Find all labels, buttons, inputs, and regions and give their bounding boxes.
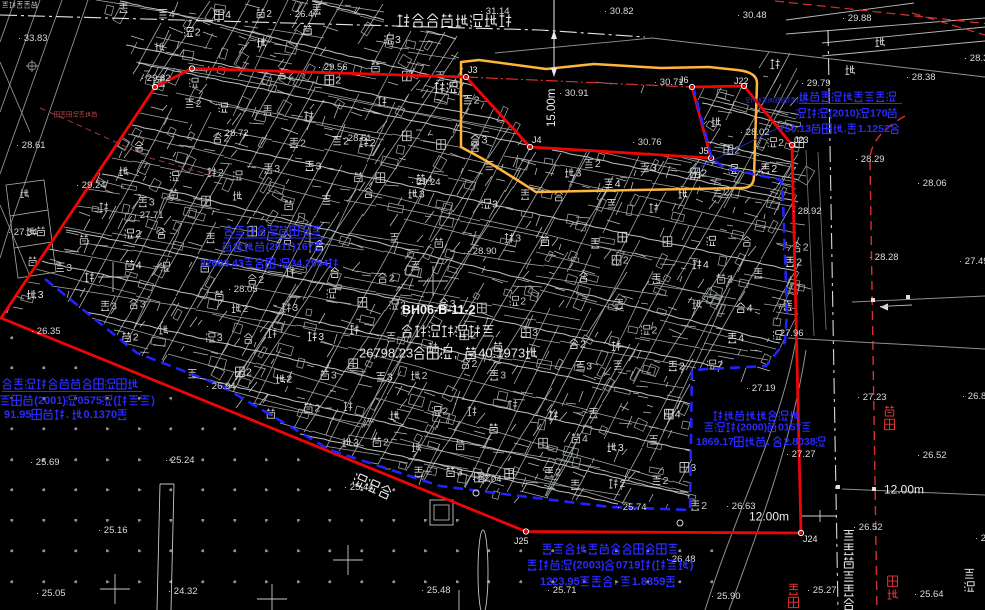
svg-text:3: 3 (38, 289, 44, 301)
svg-text:4: 4 (169, 8, 175, 20)
svg-text:· 30.48: · 30.48 (737, 10, 767, 21)
svg-text:2: 2 (580, 338, 586, 350)
svg-text:· 24.32: · 24.32 (168, 586, 198, 597)
svg-text:2: 2 (246, 366, 252, 378)
svg-text:3: 3 (331, 370, 337, 382)
svg-text:2: 2 (266, 9, 272, 20)
svg-text:· 28.02: · 28.02 (740, 127, 770, 138)
svg-text:40.1973: 40.1973 (478, 345, 525, 360)
svg-text:3: 3 (353, 437, 359, 449)
svg-text:3: 3 (532, 327, 538, 339)
svg-text:2: 2 (474, 94, 480, 106)
svg-text:.: . (614, 576, 617, 588)
svg-text:· 27.27: · 27.27 (786, 449, 816, 460)
svg-text:· 26.63: · 26.63 (726, 501, 756, 512)
svg-text:· 33.83: · 33.83 (18, 33, 48, 44)
svg-text:· 27.96: · 27.96 (774, 328, 804, 339)
svg-text:2: 2 (778, 137, 784, 149)
svg-text:· 27.49: · 27.49 (959, 256, 985, 267)
svg-text:· 26.47: · 26.47 (289, 9, 319, 20)
svg-text:15.00m: 15.00m (546, 89, 558, 127)
svg-text:2.8038: 2.8038 (784, 436, 816, 448)
svg-text:0575: 0575 (78, 395, 102, 407)
svg-text:2: 2 (623, 255, 629, 267)
svg-text:2: 2 (300, 137, 306, 149)
svg-text:167: 167 (296, 241, 314, 253)
svg-text:4: 4 (738, 333, 744, 345)
svg-text:2: 2 (286, 374, 292, 386)
svg-text:(: ( (652, 560, 656, 572)
svg-text:4: 4 (747, 302, 753, 314)
svg-text:· 27.04: · 27.04 (472, 474, 502, 485)
svg-text:2: 2 (389, 273, 395, 285)
svg-text:· 28.05: · 28.05 (228, 284, 258, 295)
svg-text:750.13: 750.13 (779, 123, 811, 135)
svg-text:2: 2 (796, 256, 802, 268)
svg-text:3: 3 (149, 197, 155, 209)
svg-text:2: 2 (133, 332, 139, 344)
svg-text:3: 3 (217, 332, 223, 344)
svg-text:J22: J22 (734, 76, 749, 86)
svg-text:· 29.88: · 29.88 (842, 13, 872, 24)
svg-text:3: 3 (140, 299, 146, 311)
svg-text:· 27.23: · 27.23 (857, 392, 887, 403)
svg-text:(2000): (2000) (737, 422, 767, 434)
svg-text:3: 3 (651, 162, 657, 174)
svg-text:26798.23: 26798.23 (359, 345, 413, 360)
svg-text:J3: J3 (468, 65, 478, 75)
svg-text:(2011): (2011) (266, 241, 296, 253)
svg-text:· 30.71: · 30.71 (654, 77, 684, 88)
svg-text:· 26.52: · 26.52 (853, 522, 883, 533)
svg-text:· 29.24: · 29.24 (411, 177, 441, 188)
svg-text:· 26.52: · 26.52 (917, 450, 947, 461)
svg-text:(2003): (2003) (573, 560, 605, 572)
svg-text:2: 2 (196, 98, 202, 110)
svg-text:(2001): (2001) (34, 395, 66, 407)
svg-text:3: 3 (492, 198, 498, 210)
svg-text:0.1370: 0.1370 (84, 409, 118, 421)
svg-text:· 28.72: · 28.72 (219, 128, 249, 139)
svg-text:· 25.48: · 25.48 (421, 585, 451, 596)
svg-text:2: 2 (652, 324, 658, 336)
svg-text:2: 2 (242, 303, 248, 315)
svg-text:0157: 0157 (778, 422, 802, 434)
svg-text:2: 2 (383, 437, 389, 449)
svg-text:2: 2 (734, 144, 740, 156)
svg-text:3: 3 (274, 163, 280, 175)
svg-text:· 28.28: · 28.28 (869, 252, 899, 263)
svg-text:· 25.27: · 25.27 (807, 585, 837, 596)
svg-text:.: . (767, 436, 770, 448)
svg-text:· 28.31: · 28.31 (964, 53, 985, 64)
svg-text:2: 2 (727, 273, 733, 285)
svg-text:2: 2 (679, 361, 685, 373)
svg-text:4: 4 (703, 259, 709, 271)
svg-text:· 28.38: · 28.38 (906, 72, 936, 83)
svg-text:4: 4 (582, 433, 588, 445)
svg-text:2: 2 (422, 370, 428, 382)
svg-text:· 29.56: · 29.56 (318, 62, 348, 73)
svg-text:· 25.05: · 25.05 (36, 588, 66, 599)
svg-text:12.00m: 12.00m (884, 483, 924, 497)
svg-text:3: 3 (515, 232, 521, 244)
svg-text:3: 3 (500, 370, 506, 382)
svg-text:.: . (844, 123, 847, 135)
svg-text:· 28.61: · 28.61 (342, 133, 372, 144)
svg-text:2: 2 (442, 406, 448, 418)
svg-text:4: 4 (225, 9, 231, 21)
svg-text:(2010): (2010) (829, 108, 859, 120)
svg-text:· 28.90: · 28.90 (467, 246, 497, 257)
svg-text:· 26.35: · 26.35 (31, 326, 61, 337)
svg-text:· 25.16: · 25.16 (98, 525, 128, 536)
svg-text:4: 4 (615, 178, 621, 190)
svg-text:,: , (454, 345, 458, 360)
svg-text:J23: J23 (794, 135, 809, 145)
svg-text:0719: 0719 (616, 560, 640, 572)
svg-text:· 25.64: · 25.64 (914, 589, 944, 600)
svg-text:· 30.82: · 30.82 (604, 6, 634, 17)
svg-text:2: 2 (771, 163, 777, 175)
svg-text:2: 2 (701, 500, 707, 512)
svg-text:2: 2 (218, 167, 224, 179)
svg-text:3: 3 (457, 467, 463, 479)
svg-text:2: 2 (472, 358, 478, 370)
svg-text:91.95: 91.95 (4, 409, 32, 421)
svg-text:· 29.32: · 29.32 (141, 73, 171, 84)
svg-text:): ) (151, 395, 155, 407)
svg-text:3: 3 (387, 372, 393, 384)
svg-text:2: 2 (663, 475, 669, 487)
svg-text:J25: J25 (514, 536, 529, 546)
svg-text:2: 2 (620, 478, 626, 490)
svg-text:· 30.76: · 30.76 (632, 137, 662, 148)
svg-text:2: 2 (520, 296, 526, 308)
svg-text:): ) (690, 560, 694, 572)
svg-text:3: 3 (419, 188, 425, 200)
svg-text:3: 3 (111, 300, 117, 312)
svg-text:· 25.24: · 25.24 (165, 455, 195, 466)
svg-text:· 25.43: · 25.43 (975, 533, 985, 544)
svg-text:J24: J24 (803, 534, 818, 544)
svg-text:· 29.24: · 29.24 (76, 180, 106, 191)
svg-text:· 28.61: · 28.61 (16, 140, 46, 151)
svg-text:· 25.74: · 25.74 (617, 502, 647, 513)
svg-text:3: 3 (481, 135, 487, 147)
svg-text:2: 2 (195, 27, 201, 39)
svg-text:34.2954: 34.2954 (290, 258, 328, 270)
svg-text:3: 3 (395, 34, 401, 46)
svg-text:J5: J5 (699, 146, 709, 156)
svg-text:· 28.92: · 28.92 (792, 206, 822, 217)
svg-text:· 25.90: · 25.90 (711, 591, 741, 602)
svg-text:(: ( (113, 395, 117, 407)
svg-text:· 26.94: · 26.94 (206, 381, 236, 392)
svg-text:.: . (66, 409, 69, 421)
svg-text:1869.17: 1869.17 (696, 436, 734, 448)
svg-text:1.8359: 1.8359 (632, 576, 666, 588)
svg-text:2: 2 (595, 158, 601, 170)
svg-text:1.1252: 1.1252 (858, 123, 890, 135)
svg-text:3: 3 (292, 302, 298, 314)
svg-text:170: 170 (870, 108, 888, 120)
svg-text:3: 3 (586, 360, 592, 372)
svg-text:3: 3 (618, 442, 624, 454)
svg-text:· 27.71: · 27.71 (134, 210, 164, 221)
svg-text:· 27.19: · 27.19 (746, 383, 776, 394)
svg-text:· 25.44: · 25.44 (344, 482, 374, 493)
svg-text:4: 4 (675, 409, 681, 421)
svg-text:· 29.79: · 29.79 (801, 78, 831, 89)
svg-text:2: 2 (555, 467, 561, 479)
svg-text:2: 2 (258, 274, 264, 286)
svg-text:2: 2 (314, 403, 320, 415)
svg-text:J4: J4 (532, 135, 542, 145)
svg-text:2: 2 (701, 168, 707, 180)
svg-text:1223.95: 1223.95 (540, 576, 580, 588)
svg-text:· 28.29: · 28.29 (855, 154, 885, 165)
svg-text:2: 2 (803, 242, 809, 254)
svg-text:· 25.69: · 25.69 (30, 457, 60, 468)
svg-text:· 27.34: · 27.34 (8, 227, 38, 238)
svg-text:3: 3 (576, 167, 582, 179)
svg-text:3: 3 (318, 331, 324, 343)
svg-text:2: 2 (335, 75, 341, 87)
svg-text:22603.43: 22603.43 (200, 258, 244, 270)
svg-text:BH06-B-11-2: BH06-B-11-2 (402, 303, 476, 317)
svg-text:· 30.91: · 30.91 (559, 88, 589, 99)
svg-text:· 26.89: · 26.89 (962, 391, 985, 402)
svg-text:· 31.14: · 31.14 (480, 6, 510, 17)
svg-text:3: 3 (316, 160, 322, 172)
svg-text:4: 4 (136, 260, 142, 272)
svg-text:2: 2 (135, 228, 141, 240)
svg-text:.: . (277, 258, 280, 270)
svg-text:3: 3 (66, 262, 72, 274)
svg-text:· 28.06: · 28.06 (917, 178, 947, 189)
